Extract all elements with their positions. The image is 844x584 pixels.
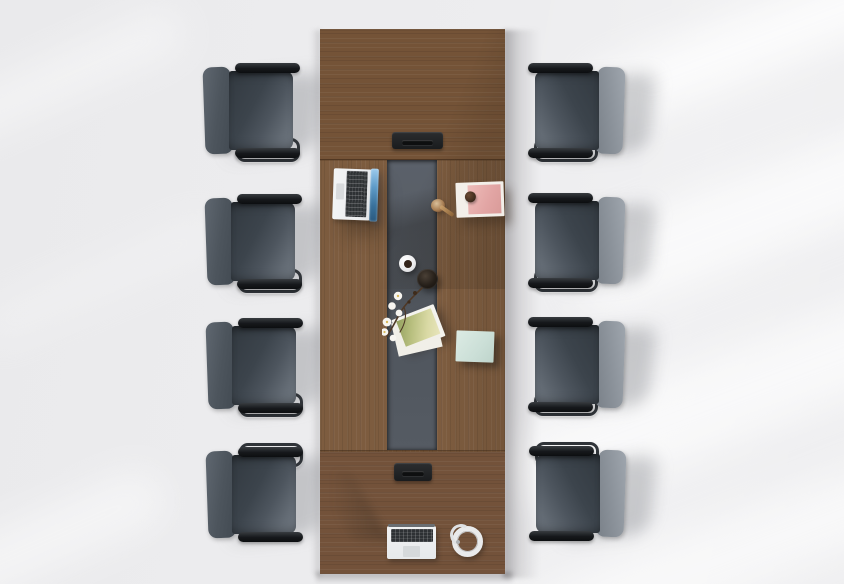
laptop-cast-shadow bbox=[313, 472, 390, 540]
coffee-surface bbox=[404, 260, 412, 268]
laptop-trackpad bbox=[403, 546, 420, 557]
closed-laptop bbox=[387, 526, 436, 559]
mint-notepad bbox=[455, 330, 494, 362]
scene bbox=[0, 0, 844, 584]
espresso-cup bbox=[399, 255, 416, 272]
laptop-keyboard bbox=[345, 171, 368, 218]
pink-notepad bbox=[455, 181, 504, 218]
laptop-screen-edge bbox=[369, 169, 379, 222]
tabletop-items bbox=[0, 0, 844, 584]
glass-cup bbox=[431, 199, 445, 212]
open-laptop bbox=[332, 168, 380, 221]
laptop-hinge bbox=[388, 524, 435, 527]
headphones-stud bbox=[456, 540, 460, 544]
laptop-trackpad bbox=[336, 183, 345, 199]
flower-branch bbox=[382, 282, 432, 344]
laptop-keyboard bbox=[391, 529, 433, 542]
spoon bbox=[439, 205, 454, 217]
headphones-band bbox=[448, 522, 475, 549]
headphones bbox=[452, 526, 483, 557]
